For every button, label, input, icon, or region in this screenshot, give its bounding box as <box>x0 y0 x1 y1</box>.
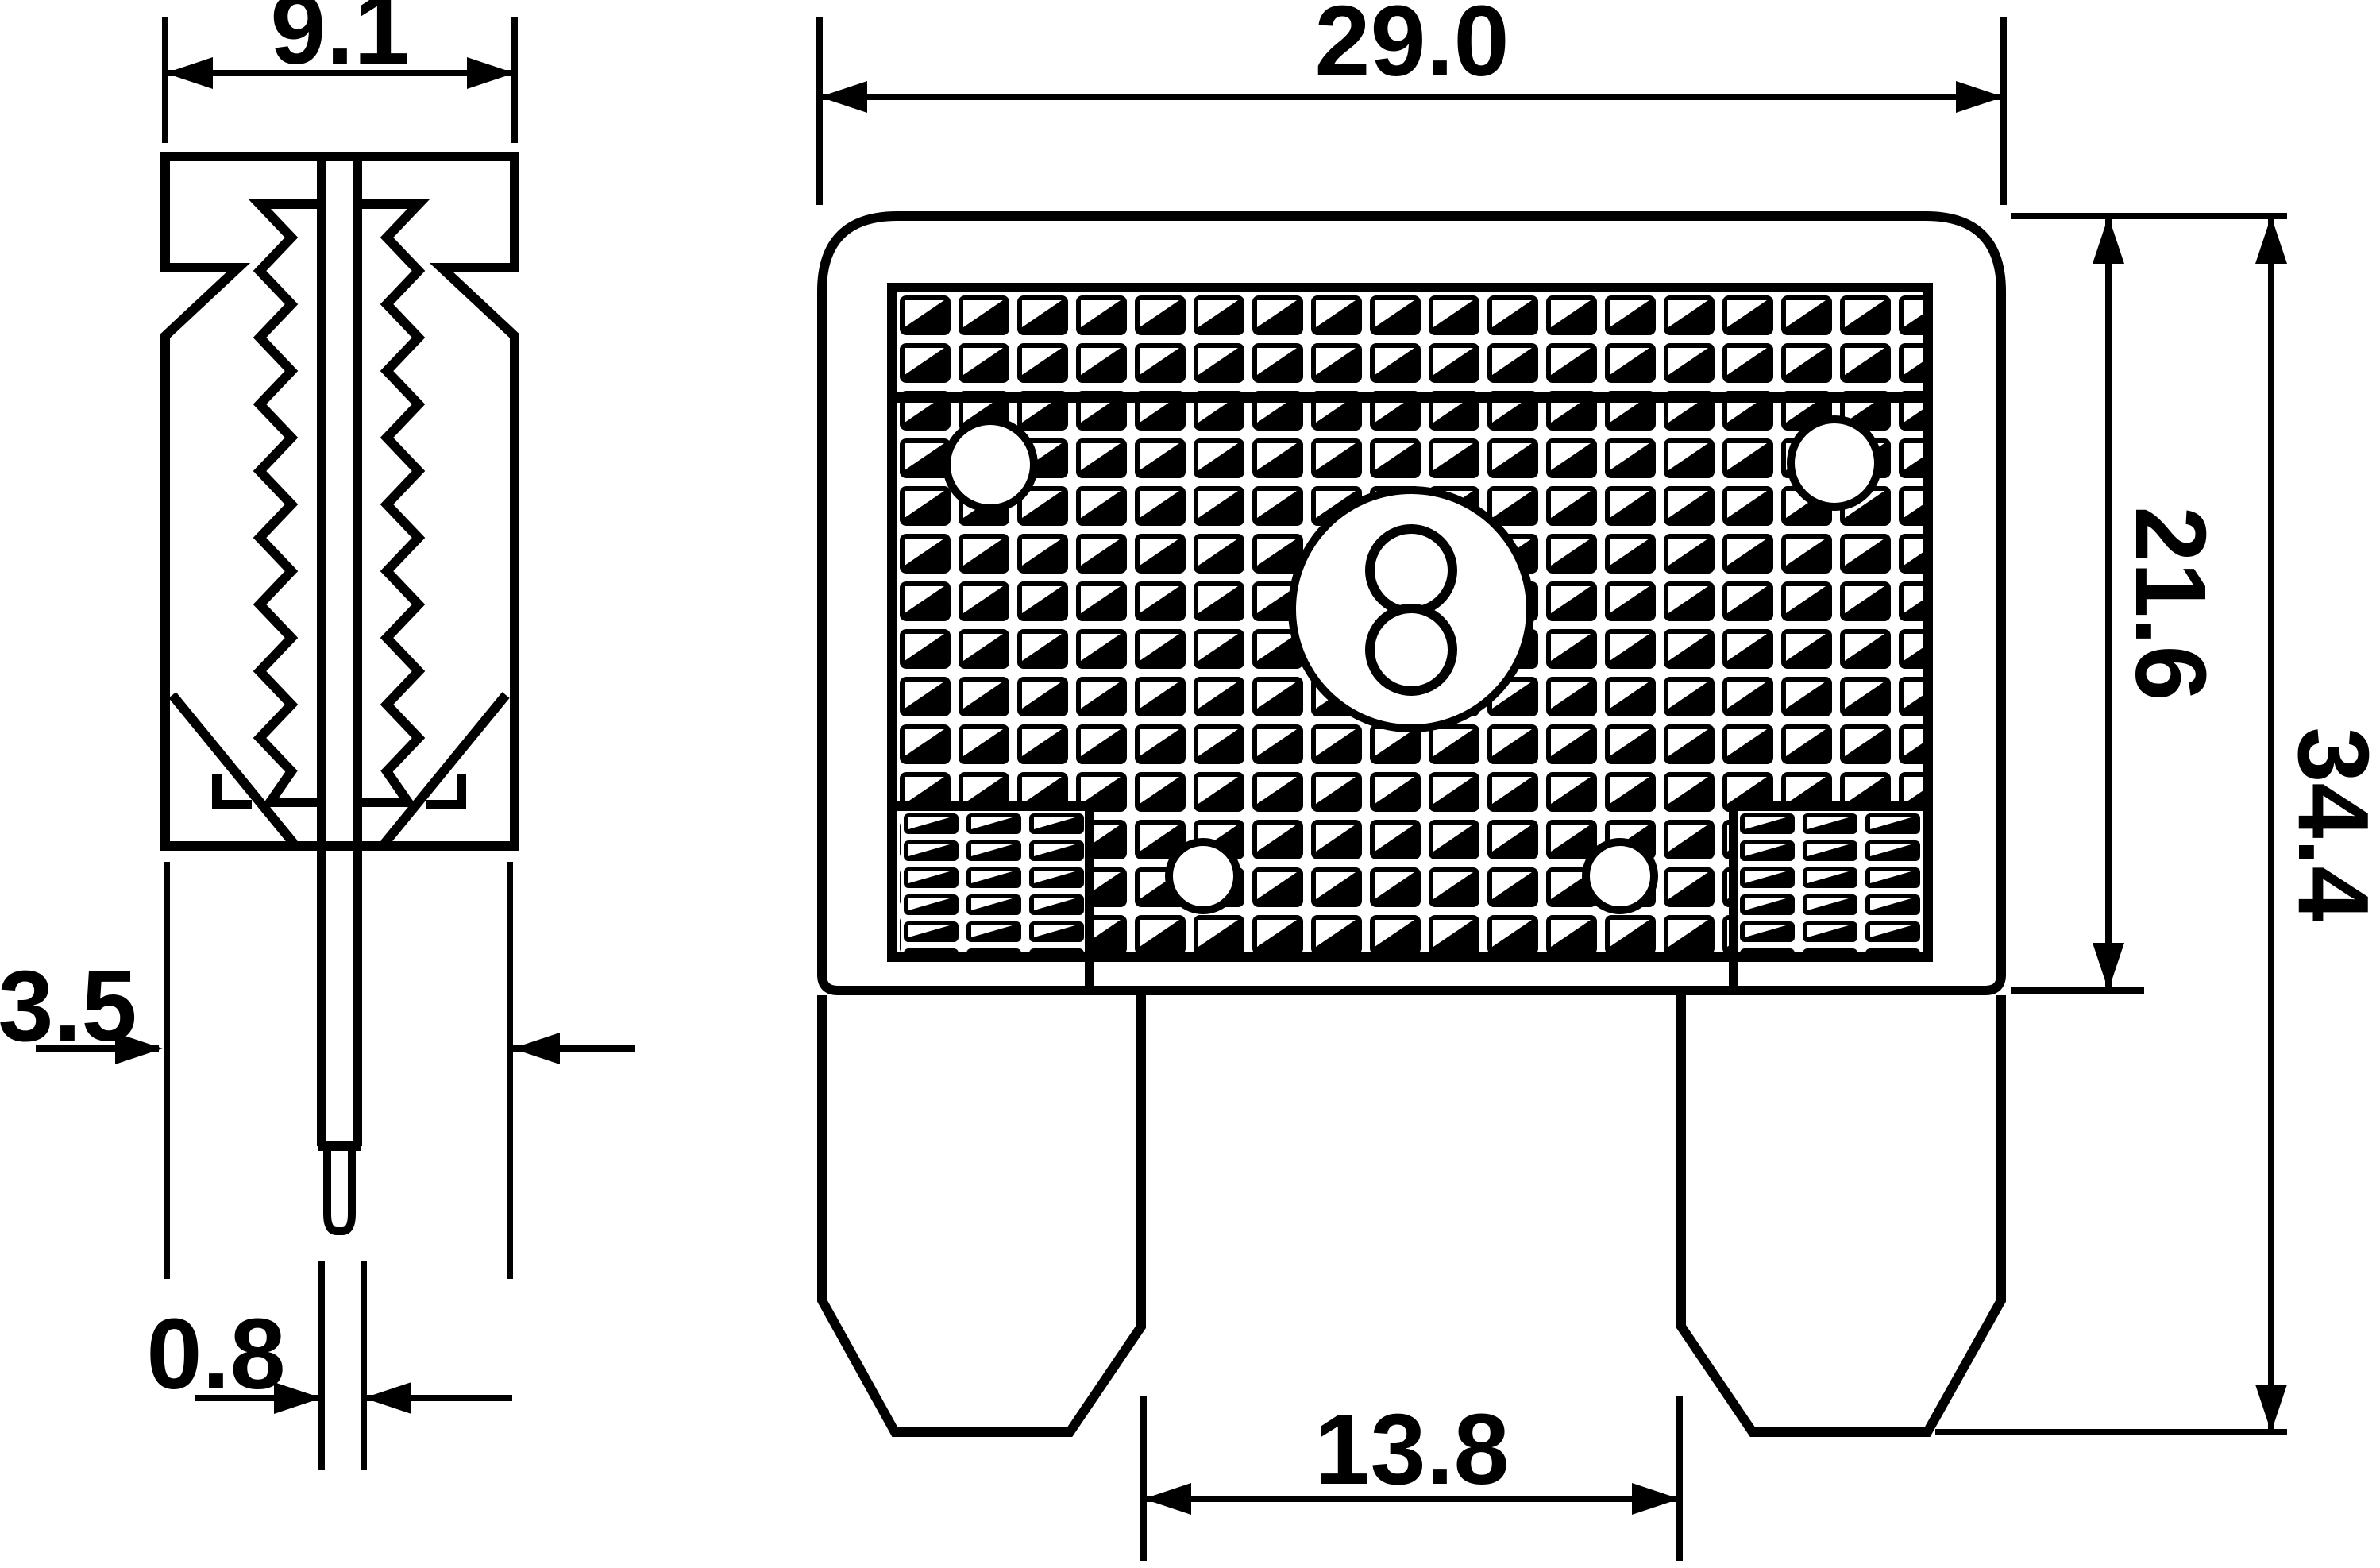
side-view: 9.1 3.5 0.8 <box>0 0 635 1470</box>
blade-right <box>1681 995 2001 1432</box>
hole-top-left <box>947 421 1034 508</box>
arrowhead-right <box>467 57 515 89</box>
dim-label-overall-height: 34.4 <box>2278 727 2380 921</box>
element-loop-bottom <box>1370 608 1452 691</box>
hole-top-right <box>1791 419 1878 507</box>
hatch-panel-fine-texture-right <box>1737 811 1924 952</box>
arrowhead-up <box>2093 216 2124 264</box>
fuse-technical-drawing: 9.1 3.5 0.8 <box>0 0 2380 1568</box>
dimension-9-1: 9.1 <box>165 0 515 143</box>
arrowhead-down <box>2255 1385 2287 1432</box>
dim-label-front-width: 29.0 <box>1314 0 1509 97</box>
side-blade-tip <box>327 1146 352 1231</box>
dim-label-lower-thickness: 3.5 <box>0 950 137 1062</box>
dimension-21-6: 21.6 <box>2011 216 2287 991</box>
hatch-panel-fine-texture-left <box>901 811 1088 952</box>
arrowhead-left <box>165 57 213 89</box>
front-view: 29.0 21.6 34.4 13.8 <box>820 0 2380 1561</box>
arrowhead-down <box>2093 943 2124 991</box>
arrowhead-left <box>1144 1483 1191 1515</box>
blade-left <box>822 995 1141 1432</box>
dim-label-body-height: 21.6 <box>2115 506 2227 701</box>
arrowhead-right <box>1956 81 2004 113</box>
element-loop-top <box>1370 529 1452 612</box>
dim-label-side-width: 9.1 <box>270 0 409 85</box>
arrowhead-up <box>2255 216 2287 264</box>
dimension-29-0: 29.0 <box>820 0 2004 205</box>
dim-label-blade-thickness: 0.8 <box>146 1298 285 1410</box>
dimension-0-8: 0.8 <box>146 1261 512 1470</box>
arrowhead-left <box>512 1033 560 1064</box>
arrowhead-left <box>820 81 867 113</box>
hole-bottom-left <box>1169 842 1237 910</box>
arrowhead-left <box>364 1382 411 1414</box>
dim-label-blade-spacing: 13.8 <box>1314 1393 1509 1505</box>
dimension-13-8: 13.8 <box>1144 1393 1680 1561</box>
hole-bottom-right <box>1586 842 1654 910</box>
arrowhead-right <box>1632 1483 1680 1515</box>
